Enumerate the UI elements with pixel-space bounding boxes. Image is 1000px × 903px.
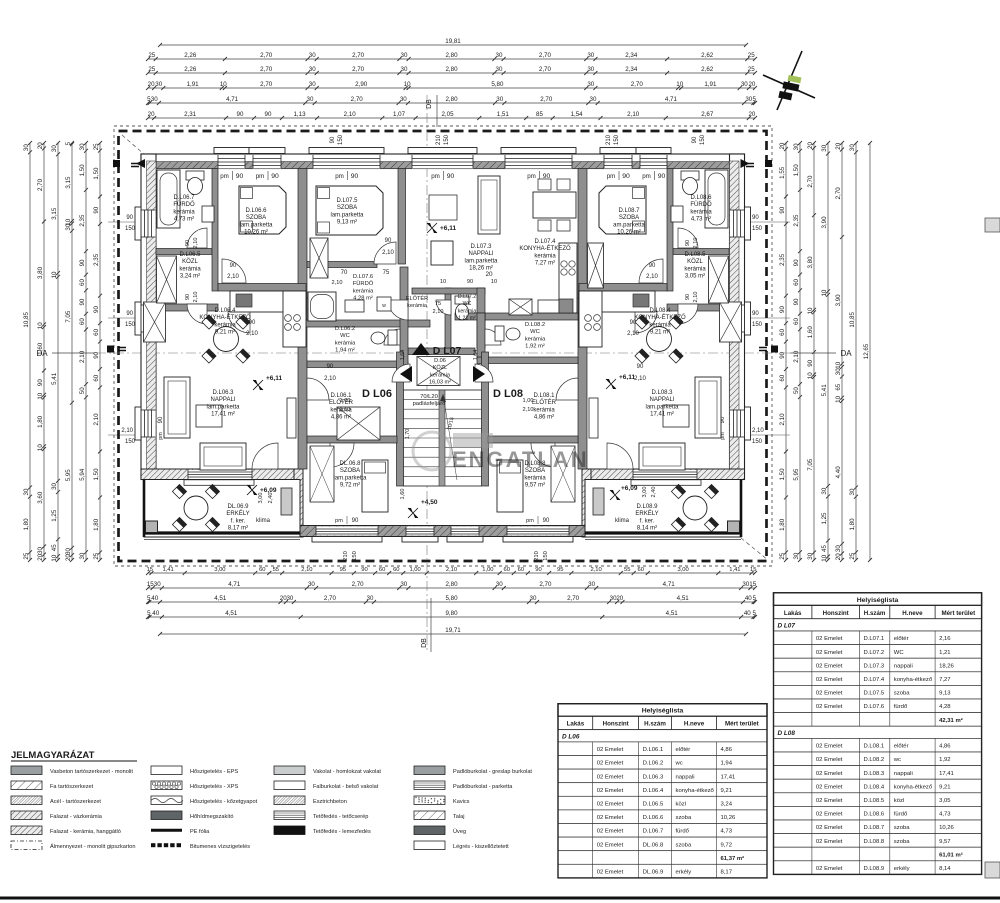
svg-text:D.L06.6: D.L06.6	[643, 815, 664, 821]
svg-text:150: 150	[752, 439, 763, 445]
svg-text:45: 45	[51, 544, 58, 551]
svg-text:H.szám: H.szám	[864, 610, 886, 617]
svg-text:5,80: 5,80	[491, 81, 504, 88]
svg-text:2,70: 2,70	[37, 178, 44, 191]
svg-text:60: 60	[93, 328, 100, 335]
svg-text:2,70: 2,70	[260, 52, 273, 59]
svg-text:3,80: 3,80	[807, 256, 814, 269]
svg-text:D.L08.3: D.L08.3	[651, 390, 673, 396]
svg-text:kerámia: kerámia	[430, 372, 451, 378]
svg-text:150: 150	[125, 439, 136, 445]
svg-text:2,35: 2,35	[793, 214, 800, 227]
svg-text:30: 30	[309, 66, 316, 73]
svg-text:D.L08.4: D.L08.4	[649, 308, 671, 314]
svg-text:FÜRDŐ: FÜRDŐ	[173, 201, 195, 208]
svg-text:2,10: 2,10	[193, 238, 199, 249]
svg-text:150: 150	[338, 134, 344, 145]
svg-text:nappali: nappali	[894, 663, 913, 669]
svg-text:02 Emelet: 02 Emelet	[597, 761, 624, 767]
svg-text:90: 90	[649, 263, 656, 269]
svg-text:közl: közl	[894, 798, 904, 804]
svg-text:7,27 m²: 7,27 m²	[535, 261, 555, 267]
svg-text:D.L07.6: D.L07.6	[864, 704, 885, 710]
svg-text:2,80: 2,80	[445, 581, 458, 588]
svg-text:1,64: 1,64	[400, 350, 406, 361]
svg-text:2,16: 2,16	[939, 636, 951, 642]
svg-text:D.L06.6: D.L06.6	[245, 208, 267, 214]
svg-text:fürdő: fürdő	[676, 829, 690, 835]
svg-text:pm: pm	[335, 173, 344, 180]
svg-text:90: 90	[93, 351, 100, 358]
svg-text:1,91: 1,91	[704, 81, 717, 88]
svg-text:40: 40	[152, 610, 159, 617]
svg-text:am.parketta: am.parketta	[613, 222, 645, 228]
svg-text:pm: pm	[526, 518, 534, 524]
svg-text:2,70: 2,70	[539, 66, 552, 73]
svg-text:ELŐTÉR: ELŐTÉR	[406, 295, 428, 302]
svg-text:3,90: 3,90	[821, 216, 828, 229]
svg-text:90: 90	[79, 259, 86, 266]
svg-text:SZOBA: SZOBA	[619, 215, 639, 221]
svg-text:8,17: 8,17	[721, 870, 732, 876]
svg-text:2,10: 2,10	[79, 350, 86, 363]
svg-text:D.L06.1: D.L06.1	[330, 393, 352, 399]
svg-text:12,65: 12,65	[863, 343, 870, 359]
svg-text:+6,09: +6,09	[621, 485, 638, 492]
svg-text:5,95: 5,95	[793, 468, 800, 481]
svg-text:90: 90	[447, 173, 455, 180]
svg-text:D.L06.3: D.L06.3	[643, 774, 664, 780]
svg-text:lam.parketta: lam.parketta	[333, 475, 367, 481]
svg-text:30: 30	[793, 552, 800, 559]
svg-text:30: 30	[79, 143, 86, 150]
svg-text:30: 30	[51, 482, 58, 489]
svg-text:18,26: 18,26	[939, 663, 954, 669]
svg-text:90: 90	[779, 351, 786, 358]
svg-text:30: 30	[79, 552, 86, 559]
svg-text:9,13 m²: 9,13 m²	[337, 220, 357, 226]
svg-text:17,41: 17,41	[721, 774, 736, 780]
svg-text:02 Emelet: 02 Emelet	[597, 842, 624, 848]
svg-text:70/L20: 70/L20	[420, 394, 438, 400]
svg-text:szoba: szoba	[676, 842, 692, 848]
svg-text:Tetőfedés - tetőcserép: Tetőfedés - tetőcserép	[313, 814, 368, 820]
svg-text:30: 30	[309, 81, 316, 88]
svg-text:10,85: 10,85	[23, 312, 30, 328]
svg-text:1,07: 1,07	[393, 111, 406, 118]
svg-text:kerámia: kerámia	[525, 336, 546, 342]
svg-text:1,60: 1,60	[807, 326, 814, 339]
svg-text:3,60: 3,60	[37, 491, 44, 504]
svg-text:90: 90	[93, 206, 100, 213]
svg-text:kerámia: kerámia	[533, 407, 555, 413]
svg-text:lam.parketta: lam.parketta	[206, 404, 240, 410]
svg-text:H.neve: H.neve	[684, 721, 705, 728]
svg-text:D.L08.4: D.L08.4	[864, 784, 885, 790]
svg-text:85: 85	[536, 111, 543, 118]
svg-text:02 Emelet: 02 Emelet	[597, 774, 624, 780]
svg-text:30: 30	[496, 52, 503, 59]
svg-text:30: 30	[37, 547, 44, 554]
svg-text:2,26: 2,26	[184, 66, 197, 73]
svg-text:45: 45	[821, 545, 828, 552]
svg-text:4,40: 4,40	[835, 466, 842, 479]
svg-text:Honszint: Honszint	[823, 610, 849, 617]
svg-text:2,80: 2,80	[445, 96, 458, 103]
svg-text:KONYHA-ÉTKEZŐ: KONYHA-ÉTKEZŐ	[199, 314, 251, 321]
svg-text:150: 150	[125, 226, 136, 232]
svg-text:D.06: D.06	[434, 358, 446, 364]
svg-text:+6,11: +6,11	[440, 225, 456, 232]
svg-text:D L07: D L07	[433, 345, 462, 357]
svg-text:90: 90	[351, 173, 359, 180]
svg-text:H.neve: H.neve	[902, 610, 923, 617]
svg-text:JELMAGYARÁZAT: JELMAGYARÁZAT	[11, 750, 95, 761]
svg-text:4,51: 4,51	[214, 595, 227, 602]
svg-text:30: 30	[587, 81, 594, 88]
svg-text:Hőszigetelés - XPS: Hőszigetelés - XPS	[190, 784, 238, 790]
svg-text:2,10: 2,10	[121, 428, 133, 434]
svg-text:150: 150	[352, 551, 358, 561]
svg-text:1,51: 1,51	[497, 111, 510, 118]
svg-text:D.L06.4: D.L06.4	[214, 308, 236, 314]
svg-text:2,10: 2,10	[446, 567, 457, 573]
svg-text:150: 150	[752, 226, 763, 232]
svg-text:210: 210	[606, 134, 612, 145]
svg-text:Talaj: Talaj	[453, 814, 465, 820]
svg-text:SZOBA: SZOBA	[246, 215, 266, 221]
svg-text:30: 30	[286, 595, 293, 602]
svg-text:2,70: 2,70	[351, 96, 364, 103]
svg-text:PE fólia: PE fólia	[190, 829, 210, 835]
svg-text:30: 30	[151, 96, 158, 103]
svg-text:30: 30	[590, 96, 597, 103]
svg-text:2,70: 2,70	[539, 52, 552, 59]
svg-text:pm: pm	[335, 518, 343, 524]
svg-text:30: 30	[51, 145, 58, 152]
svg-text:DL.06.9: DL.06.9	[227, 504, 249, 510]
svg-text:NAPPALI: NAPPALI	[469, 251, 494, 257]
svg-text:210: 210	[436, 134, 442, 145]
svg-text:3,00: 3,00	[642, 487, 648, 498]
svg-text:Tetőfedés - lemezfedés: Tetőfedés - lemezfedés	[313, 829, 371, 835]
svg-text:90: 90	[126, 215, 133, 221]
svg-text:2,10: 2,10	[227, 274, 239, 280]
svg-text:10: 10	[491, 279, 497, 285]
svg-text:60: 60	[379, 567, 385, 573]
svg-text:19,71: 19,71	[445, 627, 461, 634]
svg-text:2,10: 2,10	[590, 567, 601, 573]
svg-text:D.L07.4: D.L07.4	[864, 677, 885, 683]
svg-text:1,80: 1,80	[37, 415, 44, 428]
svg-text:2,10: 2,10	[193, 292, 199, 303]
svg-text:02 Emelet: 02 Emelet	[816, 825, 843, 831]
svg-text:pm: pm	[220, 173, 229, 180]
svg-text:D L06: D L06	[562, 734, 580, 741]
svg-text:ELŐTÉR: ELŐTÉR	[532, 399, 557, 406]
svg-text:20: 20	[485, 271, 493, 278]
svg-text:30: 30	[821, 144, 828, 151]
svg-text:02 Emelet: 02 Emelet	[597, 802, 624, 808]
svg-text:1,50: 1,50	[93, 468, 100, 481]
svg-text:klima: klima	[615, 518, 630, 524]
svg-text:1,80: 1,80	[93, 518, 100, 531]
svg-text:+6,11: +6,11	[619, 374, 635, 381]
svg-text:30: 30	[367, 595, 374, 602]
svg-text:02 Emelet: 02 Emelet	[816, 650, 843, 656]
svg-text:02 Emelet: 02 Emelet	[816, 784, 843, 790]
svg-text:4,73 m²: 4,73 m²	[691, 217, 711, 223]
svg-text:30: 30	[793, 143, 800, 150]
svg-text:D.L08.9: D.L08.9	[636, 504, 658, 510]
svg-text:20: 20	[748, 81, 755, 88]
svg-text:előtér: előtér	[894, 636, 909, 642]
svg-text:60: 60	[518, 567, 524, 573]
svg-text:02 Emelet: 02 Emelet	[816, 744, 843, 750]
svg-text:40: 40	[745, 595, 752, 602]
svg-text:D.L08.6: D.L08.6	[690, 195, 712, 201]
svg-text:90: 90	[330, 136, 336, 143]
svg-text:55: 55	[624, 567, 630, 573]
svg-text:02 Emelet: 02 Emelet	[816, 677, 843, 683]
svg-text:1,25: 1,25	[821, 512, 828, 525]
svg-text:02 Emelet: 02 Emelet	[597, 870, 624, 876]
svg-text:D.L08.6: D.L08.6	[864, 812, 885, 818]
svg-text:90: 90	[467, 279, 473, 285]
svg-text:1,00: 1,00	[482, 567, 493, 573]
svg-text:9,21 m²: 9,21 m²	[215, 330, 235, 336]
svg-text:SZOBA: SZOBA	[337, 205, 357, 211]
svg-text:DA: DA	[840, 349, 852, 358]
svg-text:2,70: 2,70	[352, 581, 365, 588]
svg-text:60: 60	[779, 328, 786, 335]
svg-text:7,27: 7,27	[939, 677, 950, 683]
svg-text:5,41: 5,41	[821, 384, 828, 397]
svg-text:70: 70	[341, 270, 348, 276]
svg-text:lam.parketta: lam.parketta	[239, 222, 273, 228]
svg-text:D.L06.7: D.L06.7	[173, 195, 195, 201]
svg-text:Helyiséglista: Helyiséglista	[857, 597, 899, 604]
svg-text:90: 90	[779, 206, 786, 213]
svg-text:30: 30	[309, 52, 316, 59]
svg-text:2,70: 2,70	[260, 66, 273, 73]
svg-text:3,15: 3,15	[65, 176, 72, 189]
svg-text:f. ker.: f. ker.	[640, 518, 655, 524]
svg-text:42,31 m²: 42,31 m²	[939, 717, 963, 724]
svg-text:D.L06.2: D.L06.2	[643, 761, 664, 767]
svg-text:30: 30	[154, 581, 161, 588]
svg-text:20: 20	[616, 595, 623, 602]
svg-text:fürdő: fürdő	[894, 704, 908, 710]
svg-text:Falazat - vázkerámia: Falazat - vázkerámia	[50, 814, 103, 820]
svg-text:60: 60	[503, 567, 509, 573]
svg-text:kerámia: kerámia	[684, 266, 706, 272]
svg-text:30: 30	[588, 581, 595, 588]
svg-text:2,10: 2,10	[779, 413, 786, 426]
svg-text:150: 150	[444, 134, 450, 145]
svg-text:kerámia: kerámia	[179, 266, 201, 272]
svg-text:erkély: erkély	[894, 866, 910, 872]
svg-text:1,21 m²: 1,21 m²	[458, 316, 476, 322]
svg-text:2,10: 2,10	[627, 331, 639, 337]
svg-text:02 Emelet: 02 Emelet	[816, 691, 843, 697]
svg-text:55: 55	[273, 567, 279, 573]
svg-text:02 Emelet: 02 Emelet	[597, 829, 624, 835]
svg-text:30: 30	[23, 144, 30, 151]
svg-text:19,81: 19,81	[445, 38, 461, 45]
svg-text:90: 90	[807, 359, 814, 366]
svg-text:90: 90	[752, 311, 759, 317]
svg-text:1,91: 1,91	[187, 81, 200, 88]
svg-text:90: 90	[622, 173, 630, 180]
svg-text:1,55: 1,55	[779, 166, 786, 179]
svg-text:25: 25	[849, 552, 856, 559]
svg-text:75: 75	[435, 301, 441, 307]
svg-text:fürdő: fürdő	[894, 812, 908, 818]
svg-text:30: 30	[530, 595, 537, 602]
svg-text:Hőszigetelés - EPS: Hőszigetelés - EPS	[190, 769, 238, 775]
svg-text:klima: klima	[256, 518, 271, 524]
svg-text:90: 90	[793, 298, 800, 305]
svg-text:9,21 m²: 9,21 m²	[650, 330, 670, 336]
svg-text:H.szám: H.szám	[644, 721, 666, 728]
svg-text:pm: pm	[256, 173, 265, 180]
svg-text:3,90: 3,90	[835, 294, 842, 307]
svg-text:pm: pm	[527, 173, 536, 180]
svg-text:Falazat - kerámia, hanggátló: Falazat - kerámia, hanggátló	[50, 829, 121, 835]
svg-text:90: 90	[185, 240, 191, 246]
svg-text:2,40: 2,40	[268, 493, 274, 504]
svg-text:2,70: 2,70	[631, 81, 644, 88]
svg-text:2,70: 2,70	[567, 595, 580, 602]
svg-text:2,35: 2,35	[79, 214, 86, 227]
svg-text:02 Emelet: 02 Emelet	[597, 815, 624, 821]
svg-text:D.L07.2: D.L07.2	[458, 294, 476, 300]
svg-text:Esztrichbeton: Esztrichbeton	[313, 799, 347, 805]
svg-text:1,50: 1,50	[793, 164, 800, 177]
svg-text:D.L07.1: D.L07.1	[864, 636, 885, 642]
svg-text:kerámia: kerámia	[353, 288, 374, 294]
svg-text:9,13: 9,13	[939, 691, 951, 697]
svg-text:2,70: 2,70	[324, 595, 337, 602]
svg-text:2,35: 2,35	[93, 253, 100, 266]
svg-text:3,05: 3,05	[939, 798, 951, 804]
svg-text:2,10: 2,10	[344, 111, 357, 118]
svg-text:1,94 m²: 1,94 m²	[335, 348, 355, 354]
svg-text:kerámia: kerámia	[524, 475, 546, 481]
svg-text:16,03 m²: 16,03 m²	[429, 380, 451, 386]
svg-text:150: 150	[614, 134, 620, 145]
svg-text:Falburkolat - belső vakolat: Falburkolat - belső vakolat	[313, 784, 379, 790]
svg-text:10: 10	[440, 279, 446, 285]
svg-text:WC: WC	[340, 333, 350, 339]
svg-text:1,94: 1,94	[721, 761, 733, 767]
svg-text:Mért terület: Mért terület	[941, 610, 975, 617]
svg-text:30: 30	[401, 52, 408, 59]
svg-text:9,57 m²: 9,57 m²	[525, 483, 545, 489]
svg-text:kerámia: kerámia	[407, 303, 428, 309]
svg-text:D.L08.5: D.L08.5	[864, 798, 885, 804]
svg-text:2,70: 2,70	[540, 96, 553, 103]
svg-text:30: 30	[807, 552, 814, 559]
svg-text:konyha-étkező: konyha-étkező	[894, 784, 933, 790]
svg-text:2,62: 2,62	[701, 52, 714, 59]
svg-text:02 Emelet: 02 Emelet	[816, 812, 843, 818]
svg-text:30: 30	[496, 96, 503, 103]
svg-text:D.L07.5: D.L07.5	[336, 198, 358, 204]
svg-text:1,21: 1,21	[939, 650, 950, 656]
svg-text:szoba: szoba	[894, 691, 910, 697]
svg-text:60: 60	[259, 567, 265, 573]
svg-text:1,80: 1,80	[23, 518, 30, 531]
svg-text:2,70: 2,70	[352, 66, 365, 73]
svg-text:30: 30	[400, 96, 407, 103]
svg-text:Padlóburkolat - greslap burkol: Padlóburkolat - greslap burkolat	[453, 769, 532, 775]
svg-text:D.L07.3: D.L07.3	[864, 663, 885, 669]
svg-text:4,86: 4,86	[721, 747, 733, 753]
svg-text:D.L07.3: D.L07.3	[470, 244, 492, 250]
svg-text:25: 25	[23, 552, 30, 559]
svg-text:90: 90	[158, 416, 164, 423]
svg-text:kerámia: kerámia	[649, 322, 671, 328]
svg-text:90: 90	[271, 173, 279, 180]
svg-text:Vakolat - homlokzat vakolat: Vakolat - homlokzat vakolat	[313, 769, 381, 775]
svg-text:4,73: 4,73	[939, 812, 951, 818]
svg-text:4,28: 4,28	[939, 704, 951, 710]
svg-text:10,26 m²: 10,26 m²	[244, 230, 268, 236]
svg-text:FÜRDŐ: FÜRDŐ	[690, 201, 712, 208]
svg-text:pm: pm	[158, 432, 164, 440]
svg-text:DL.06.9: DL.06.9	[643, 870, 664, 876]
svg-text:02 Emelet: 02 Emelet	[597, 788, 624, 794]
svg-text:02 Emelet: 02 Emelet	[816, 866, 843, 872]
svg-text:90: 90	[237, 111, 244, 118]
svg-text:30: 30	[587, 52, 594, 59]
svg-text:w: w	[382, 303, 386, 309]
svg-text:1,80: 1,80	[849, 518, 856, 531]
svg-text:2,10: 2,10	[332, 280, 343, 286]
svg-text:65: 65	[835, 383, 842, 390]
svg-text:kerámia: kerámia	[330, 407, 352, 413]
svg-text:D.L08.1: D.L08.1	[533, 393, 555, 399]
svg-text:4,28 m²: 4,28 m²	[353, 296, 373, 302]
svg-text:2,10: 2,10	[382, 250, 394, 256]
svg-text:4,51: 4,51	[225, 610, 238, 617]
svg-text:4,73: 4,73	[721, 829, 733, 835]
svg-text:90: 90	[79, 298, 86, 305]
svg-text:02 Emelet: 02 Emelet	[816, 704, 843, 710]
svg-text:25: 25	[748, 66, 755, 73]
svg-text:20: 20	[148, 111, 155, 118]
svg-text:90: 90	[685, 294, 691, 300]
svg-text:150: 150	[700, 134, 706, 145]
svg-text:4,71: 4,71	[665, 96, 678, 103]
svg-text:90: 90	[692, 136, 698, 143]
svg-text:90: 90	[37, 379, 44, 386]
svg-text:2,10: 2,10	[693, 238, 699, 249]
svg-text:D.L08.5: D.L08.5	[684, 252, 706, 258]
svg-text:30: 30	[155, 81, 162, 88]
svg-text:25: 25	[148, 66, 155, 73]
svg-text:40: 40	[744, 610, 751, 617]
svg-text:30: 30	[65, 547, 72, 554]
svg-text:4,71: 4,71	[663, 581, 676, 588]
svg-text:10,26: 10,26	[721, 815, 736, 821]
svg-text:konyha-étkező: konyha-étkező	[894, 677, 933, 683]
svg-text:2,10: 2,10	[246, 331, 258, 337]
svg-text:90: 90	[658, 173, 666, 180]
svg-text:95: 95	[340, 567, 346, 573]
